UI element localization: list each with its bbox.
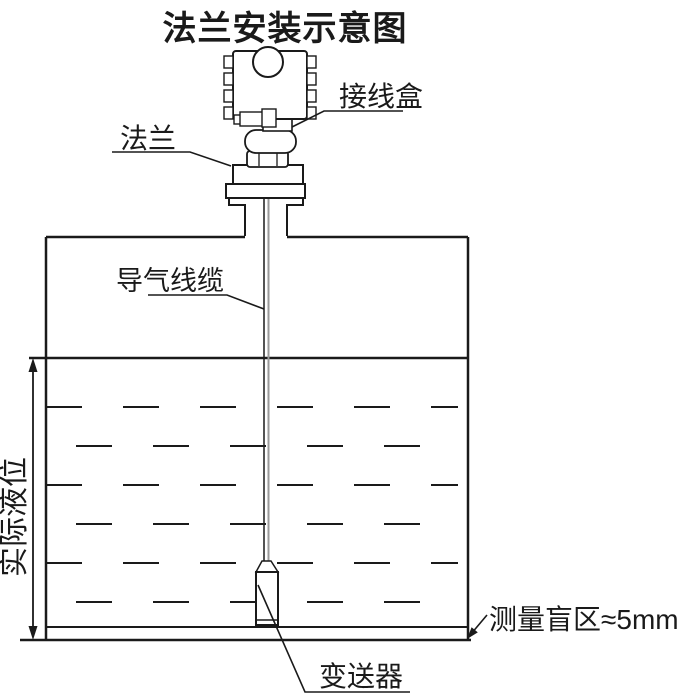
air-cable-leader bbox=[148, 295, 264, 309]
nozzle-left-wall bbox=[229, 198, 245, 236]
flange-installation-diagram: 法兰安装示意图 接线盒 法兰 导气线缆 实际液位 测量盲区≈5mm 变送器 bbox=[0, 0, 700, 700]
blind-zone-label: 测量盲区≈5mm bbox=[489, 604, 679, 635]
liquid-dashes bbox=[46, 407, 458, 602]
transmitter-head bbox=[224, 47, 316, 167]
diagram-title: 法兰安装示意图 bbox=[163, 10, 408, 48]
probe-taper bbox=[256, 561, 278, 572]
conduit-entry bbox=[234, 109, 276, 127]
nozzle bbox=[229, 198, 303, 236]
dimension-arrow-up-icon bbox=[29, 358, 38, 372]
nozzle-right-wall bbox=[287, 198, 303, 236]
dimension-arrow-down-icon bbox=[29, 626, 38, 640]
actual-level-label: 实际液位 bbox=[0, 457, 31, 577]
diagram-canvas: 法兰安装示意图 接线盒 法兰 导气线缆 实际液位 测量盲区≈5mm 变送器 bbox=[0, 0, 700, 700]
swivel-joint bbox=[245, 130, 296, 153]
housing-top-cap bbox=[253, 47, 283, 77]
junction-box-label: 接线盒 bbox=[339, 81, 423, 112]
air-cable-label: 导气线缆 bbox=[116, 266, 224, 296]
flange-leader bbox=[112, 152, 231, 166]
probe-body bbox=[256, 572, 278, 625]
transmitter-label: 变送器 bbox=[319, 661, 403, 692]
probe-transmitter bbox=[256, 561, 278, 625]
flange bbox=[226, 165, 305, 198]
flange-plate-bottom bbox=[226, 184, 305, 198]
liquid bbox=[29, 358, 468, 602]
tank bbox=[20, 237, 471, 640]
flange-label: 法兰 bbox=[120, 123, 176, 154]
air-guide-cable bbox=[264, 198, 269, 566]
